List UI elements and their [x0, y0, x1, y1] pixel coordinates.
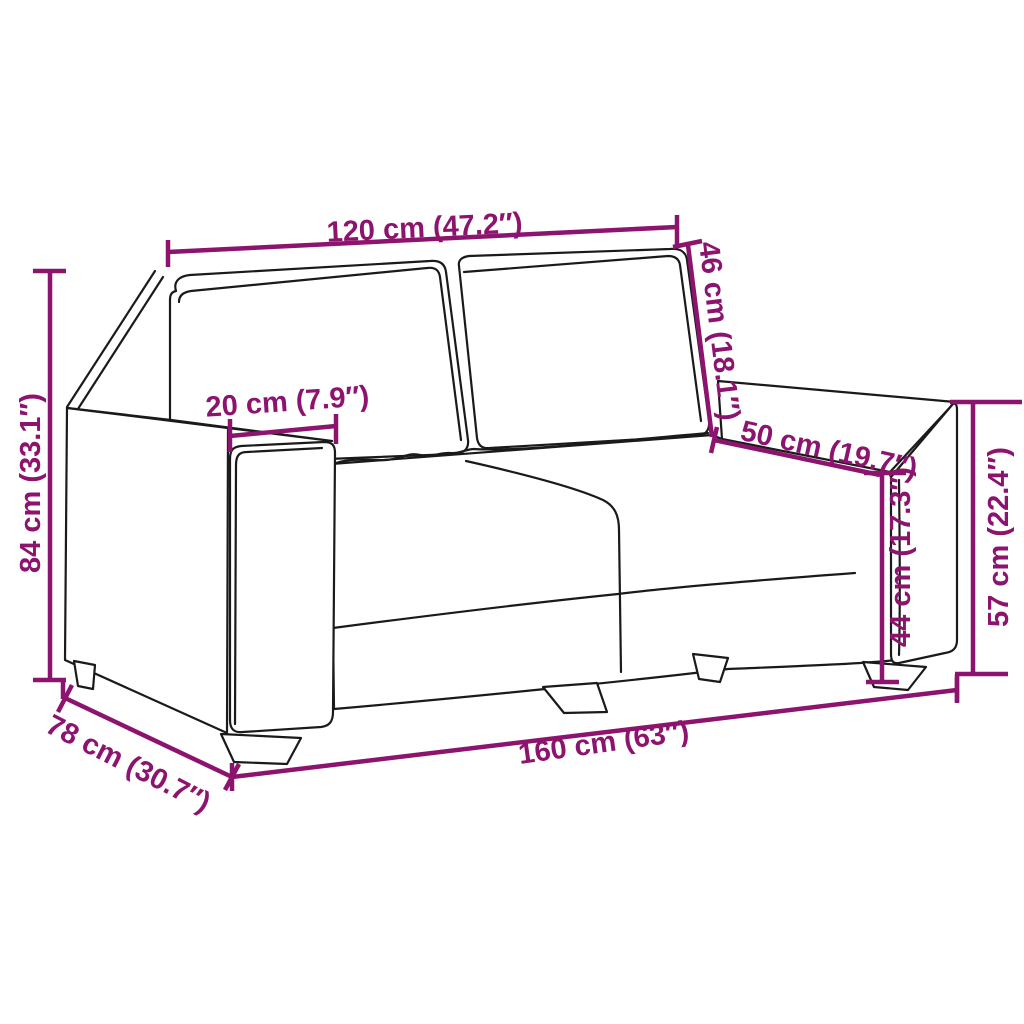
sofa-leg: [221, 734, 301, 764]
dim-label-seat-height: 44 cm (17.3″): [885, 467, 917, 647]
sofa-line-art: [65, 249, 957, 764]
armrest-left-front-face: [230, 442, 335, 732]
seat-block: [331, 435, 896, 709]
back-panel-edge: [67, 271, 155, 407]
dim-label-back-width: 120 cm (47.2″): [326, 207, 523, 249]
sofa-leg: [863, 662, 926, 690]
dim-label-overall-height: 84 cm (33.1″): [15, 393, 47, 573]
dim-label-armrest-height: 57 cm (22.4″): [983, 447, 1015, 627]
product-dimension-diagram: 120 cm (47.2″) 46 cm (18.1″) 20 cm (7.9″…: [0, 0, 1024, 1024]
sofa-leg-sled: [543, 683, 607, 713]
back-cushion-right: [459, 249, 709, 448]
sofa-leg: [74, 661, 95, 689]
sofa-leg: [693, 654, 728, 682]
back-panel-edge: [76, 277, 163, 412]
diagram-canvas: 120 cm (47.2″) 46 cm (18.1″) 20 cm (7.9″…: [0, 0, 1024, 1024]
sofa-back-panel: [67, 271, 163, 412]
dim-label-overall-width: 160 cm (63″): [516, 715, 691, 771]
